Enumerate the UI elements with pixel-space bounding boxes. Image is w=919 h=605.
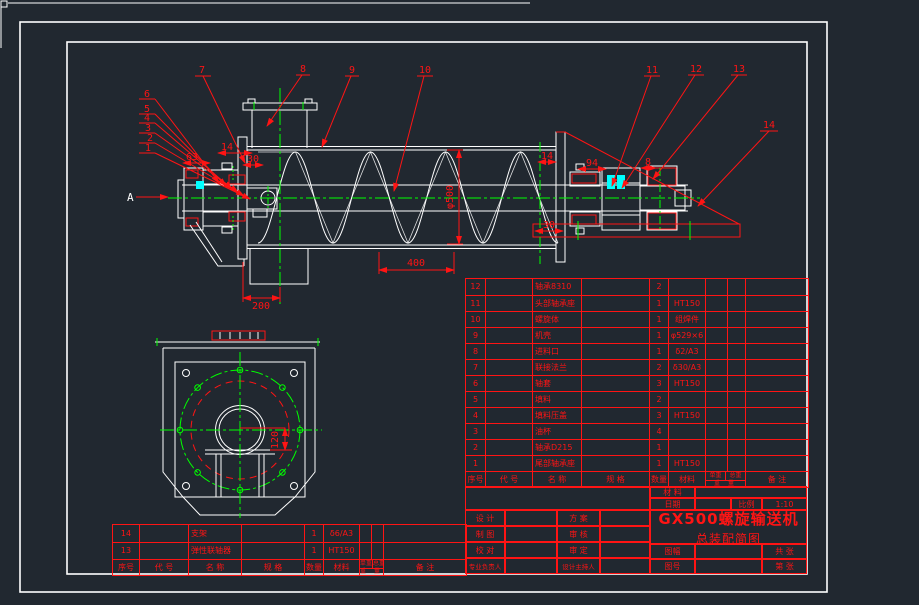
value-design (505, 510, 557, 526)
header-unit-weight: 单重 (360, 560, 372, 568)
cell-total-weight (727, 343, 745, 359)
value-check (505, 542, 557, 558)
cell-qty: 2 (649, 359, 668, 375)
svg-text:10: 10 (419, 65, 431, 76)
parts-row: 5 填料 2 (466, 391, 808, 407)
cell-code (139, 525, 188, 542)
svg-text:30: 30 (543, 220, 555, 231)
cell-unit-weight (705, 439, 727, 455)
parts-row: 3 油杯 4 (466, 423, 808, 439)
cell-code (485, 391, 532, 407)
cell-total-weight (727, 359, 745, 375)
header-unit-weight: 单重 (706, 472, 725, 480)
cell-no: 4 (466, 407, 485, 423)
parts-row: 14 支架 1 δ6/A3 (113, 525, 466, 542)
parts-row: 9 机壳 1 φ529×6 (466, 327, 808, 343)
drawing-title: GX500螺旋输送机 总装配简图 (650, 510, 807, 544)
tail-seal-highlight (196, 181, 204, 189)
svg-text:200: 200 (252, 301, 270, 312)
value-director (600, 558, 650, 574)
cell-unit-weight (359, 525, 371, 542)
header-qty: 数量 (649, 471, 668, 487)
svg-text:12: 12 (690, 64, 702, 75)
cell-remark (745, 343, 808, 359)
cell-code (485, 455, 532, 471)
header-name: 名 称 (188, 559, 241, 575)
cell-name: 填料 (532, 391, 581, 407)
cell-name: 进料口 (532, 343, 581, 359)
cell-remark (745, 327, 808, 343)
cell-qty: 1 (649, 343, 668, 359)
header-spec: 规 格 (581, 471, 649, 487)
value-draft (505, 526, 557, 542)
cell-spec (581, 407, 649, 423)
cell-no: 7 (466, 359, 485, 375)
cad-canvas: 120 400 200 φ500 14 63 30 (0, 0, 919, 605)
cell-no: 10 (466, 311, 485, 327)
svg-text:13: 13 (733, 64, 745, 75)
svg-text:8: 8 (645, 157, 651, 168)
parts-row: 6 轴套 3 HT150 (466, 375, 808, 391)
cell-unit-weight (705, 327, 727, 343)
cell-material (668, 439, 705, 455)
parts-row: 1 尾部轴承座 1 HT150 (466, 455, 808, 471)
cell-name: 轴承D215 (532, 439, 581, 455)
parts-row: 7 联接法兰 2 δ30/A3 (466, 359, 808, 375)
cell-unit-weight (705, 343, 727, 359)
cell-qty: 2 (649, 391, 668, 407)
label-scheme: 方 案 (557, 510, 600, 526)
dim-200: 200 (243, 262, 280, 312)
cell-remark (745, 295, 808, 311)
cell-material: HT150 (668, 295, 705, 311)
cell-material: δ6/A3 (323, 525, 359, 542)
cell-qty: 1 (649, 439, 668, 455)
header-material: 材料 (668, 471, 705, 487)
header-total-weight: 总重 (725, 472, 745, 480)
cell-name: 填料压盖 (532, 407, 581, 423)
cell-remark (745, 311, 808, 327)
section-arrow-a: A (127, 191, 168, 204)
cell-material: δ2/A3 (668, 343, 705, 359)
cell-qty: 4 (649, 423, 668, 439)
cell-no: 2 (466, 439, 485, 455)
cell-qty: 1 (304, 525, 323, 542)
cell-name: 螺旋体 (532, 311, 581, 327)
cell-material: HT150 (323, 542, 359, 559)
parts-row: 4 填料压盖 3 HT150 (466, 407, 808, 423)
cell-total-weight (727, 295, 745, 311)
cell-code (485, 439, 532, 455)
cell-no: 11 (466, 295, 485, 311)
cell-no: 14 (113, 525, 139, 542)
cell-qty: 2 (649, 279, 668, 295)
cell-material: HT150 (668, 407, 705, 423)
cell-remark (383, 542, 466, 559)
cell-unit-weight (705, 359, 727, 375)
header-remark: 备 注 (383, 559, 466, 575)
cell-remark (383, 525, 466, 542)
cell-qty: 3 (649, 407, 668, 423)
cell-unit-weight (705, 455, 727, 471)
cell-name: 头部轴承座 (532, 295, 581, 311)
header-no: 序号 (113, 559, 139, 575)
cell-material: δ30/A3 (668, 359, 705, 375)
header-weight-group: 单重 总重 重 量 (705, 471, 745, 487)
cell-material (668, 279, 705, 295)
cell-spec (581, 343, 649, 359)
parts-row: 12 轴承8310 2 (466, 279, 808, 295)
dim-400: 400 (379, 252, 454, 274)
header-material: 材料 (323, 559, 359, 575)
svg-text:14: 14 (221, 142, 233, 153)
svg-text:7: 7 (199, 65, 205, 76)
cell-spec (581, 279, 649, 295)
parts-list-table: 12 轴承8310 2 11 头部轴承座 1 HT150 10 螺旋体 1 组 (465, 278, 809, 488)
label-director: 设计主持人 (557, 558, 600, 574)
cell-unit-weight (359, 542, 371, 559)
cell-spec (581, 423, 649, 439)
cell-qty: 1 (649, 311, 668, 327)
svg-text:30: 30 (247, 154, 259, 165)
cell-spec (581, 375, 649, 391)
cell-name: 弹性联轴器 (188, 542, 241, 559)
cell-total-weight (727, 407, 745, 423)
cell-remark (745, 375, 808, 391)
end-view: 120 (155, 331, 322, 518)
parts-row: 11 头部轴承座 1 HT150 (466, 295, 808, 311)
cell-total-weight (727, 327, 745, 343)
svg-text:8: 8 (300, 64, 306, 75)
cell-no: 12 (466, 279, 485, 295)
cell-code (139, 542, 188, 559)
coupling-hatch (648, 168, 676, 185)
svg-text:9: 9 (349, 65, 355, 76)
cell-spec (241, 542, 304, 559)
cell-remark (745, 455, 808, 471)
cell-no: 1 (466, 455, 485, 471)
parts-row: 8 进料口 1 δ2/A3 (466, 343, 808, 359)
label-design: 设 计 (465, 510, 505, 526)
discharge-port (250, 248, 308, 284)
cell-code (485, 343, 532, 359)
cell-qty: 1 (304, 542, 323, 559)
cell-qty: 3 (649, 375, 668, 391)
cell-unit-weight (705, 295, 727, 311)
drawing-title-line1: GX500螺旋输送机 (658, 508, 798, 529)
cell-spec (581, 439, 649, 455)
cell-spec (581, 327, 649, 343)
parts-list-extension-table: 14 支架 1 δ6/A3 13 弹性联轴器 1 HT150 序号 代 号 名 … (112, 524, 467, 576)
title-block: 材 料 日期 比例 1:10 设 计 方 案 制 图 审 核 校 对 审 定 专… (465, 486, 807, 574)
cell-total-weight (727, 375, 745, 391)
cell-unit-weight (705, 391, 727, 407)
header-total-weight: 总重 (372, 560, 383, 568)
cell-no: 13 (113, 542, 139, 559)
cell-unit-weight (705, 311, 727, 327)
centerlines (168, 88, 700, 304)
header-code: 代 号 (139, 559, 188, 575)
cell-unit-weight (705, 375, 727, 391)
parts-row: 2 轴承D215 1 (466, 439, 808, 455)
trough-skirt (183, 497, 295, 515)
parts-header-row: 序号 代 号 名 称 规 格 数量 材料 单重 总重 重 量 备 注 (113, 559, 466, 575)
cell-unit-weight (705, 407, 727, 423)
value-lead (505, 558, 557, 574)
cell-name: 轴套 (532, 375, 581, 391)
head-seal-highlight-2 (617, 175, 625, 189)
cell-code (485, 327, 532, 343)
cell-name: 尾部轴承座 (532, 455, 581, 471)
svg-text:6: 6 (144, 89, 150, 100)
cell-no: 9 (466, 327, 485, 343)
parts-row: 10 螺旋体 1 组焊件 (466, 311, 808, 327)
cell-remark (745, 391, 808, 407)
cell-remark (745, 439, 808, 455)
cell-no: 8 (466, 343, 485, 359)
section-label-a: A (127, 191, 134, 204)
cell-code (485, 311, 532, 327)
cell-material (668, 423, 705, 439)
value-scheme (600, 510, 650, 526)
value-drawing-no (695, 559, 762, 574)
cell-remark (745, 279, 808, 295)
cell-code (485, 407, 532, 423)
header-remark: 备 注 (745, 471, 808, 487)
cell-spec (581, 455, 649, 471)
label-material: 材 料 (650, 486, 695, 498)
value-review (600, 526, 650, 542)
header-qty: 数量 (304, 559, 323, 575)
label-drawing-no: 图号 (650, 559, 695, 574)
cell-qty: 1 (649, 295, 668, 311)
cell-material: φ529×6 (668, 327, 705, 343)
cell-name: 支架 (188, 525, 241, 542)
cell-total-weight (727, 423, 745, 439)
cell-code (485, 359, 532, 375)
title-block-empty-cell (465, 486, 650, 510)
header-name: 名 称 (532, 471, 581, 487)
svg-text:14: 14 (541, 151, 553, 162)
cell-name: 油杯 (532, 423, 581, 439)
cell-unit-weight (705, 423, 727, 439)
tail-support-leg (190, 222, 244, 266)
label-check: 校 对 (465, 542, 505, 558)
label-total-sheets: 共 张 (762, 544, 807, 559)
cell-total-weight (727, 311, 745, 327)
cell-remark (745, 359, 808, 375)
svg-text:φ500: φ500 (445, 185, 456, 209)
label-approve: 审 定 (557, 542, 600, 558)
label-sheet-size: 图幅 (650, 544, 695, 559)
svg-text:94: 94 (586, 158, 598, 169)
cell-code (485, 423, 532, 439)
cell-total-weight (727, 391, 745, 407)
svg-text:120: 120 (270, 431, 281, 449)
cell-total-weight (727, 279, 745, 295)
cell-spec (581, 391, 649, 407)
cell-spec (581, 295, 649, 311)
end-view-inlet-flange (212, 331, 265, 340)
cell-qty: 1 (649, 327, 668, 343)
cell-spec (581, 359, 649, 375)
cell-no: 5 (466, 391, 485, 407)
cell-code (485, 295, 532, 311)
cell-name: 机壳 (532, 327, 581, 343)
value-sheet-size (695, 544, 762, 559)
cell-code (485, 375, 532, 391)
value-material (695, 486, 807, 498)
header-weight-group: 单重 总重 重 量 (359, 559, 383, 575)
cell-spec (581, 311, 649, 327)
cell-spec (241, 525, 304, 542)
cell-name: 联接法兰 (532, 359, 581, 375)
cell-remark (745, 407, 808, 423)
cell-material: HT150 (668, 375, 705, 391)
header-weight: 重 量 (360, 568, 383, 575)
svg-text:1: 1 (145, 143, 151, 154)
svg-text:14: 14 (763, 120, 775, 131)
label-draft: 制 图 (465, 526, 505, 542)
header-code: 代 号 (485, 471, 532, 487)
cell-no: 3 (466, 423, 485, 439)
svg-text:400: 400 (407, 258, 425, 269)
cell-material: 组焊件 (668, 311, 705, 327)
cell-material: HT150 (668, 455, 705, 471)
cell-qty: 1 (649, 455, 668, 471)
cell-name: 轴承8310 (532, 279, 581, 295)
label-lead: 专业负责人 (465, 558, 505, 574)
label-review: 审 核 (557, 526, 600, 542)
cell-code (485, 279, 532, 295)
label-sheet-no: 第 张 (762, 559, 807, 574)
cell-material (668, 391, 705, 407)
cell-total-weight (371, 525, 383, 542)
cell-remark (745, 423, 808, 439)
head-support-base (533, 132, 740, 240)
cell-unit-weight (705, 279, 727, 295)
value-approve (600, 542, 650, 558)
parts-header-row: 序号 代 号 名 称 规 格 数量 材料 单重 总重 重 量 备 注 (466, 471, 808, 487)
header-no: 序号 (466, 471, 485, 487)
cell-total-weight (727, 439, 745, 455)
cell-no: 6 (466, 375, 485, 391)
cell-total-weight (371, 542, 383, 559)
header-spec: 规 格 (241, 559, 304, 575)
svg-text:11: 11 (646, 65, 658, 76)
parts-row: 13 弹性联轴器 1 HT150 (113, 542, 466, 559)
dim-120: 120 (240, 428, 292, 450)
cell-total-weight (727, 455, 745, 471)
